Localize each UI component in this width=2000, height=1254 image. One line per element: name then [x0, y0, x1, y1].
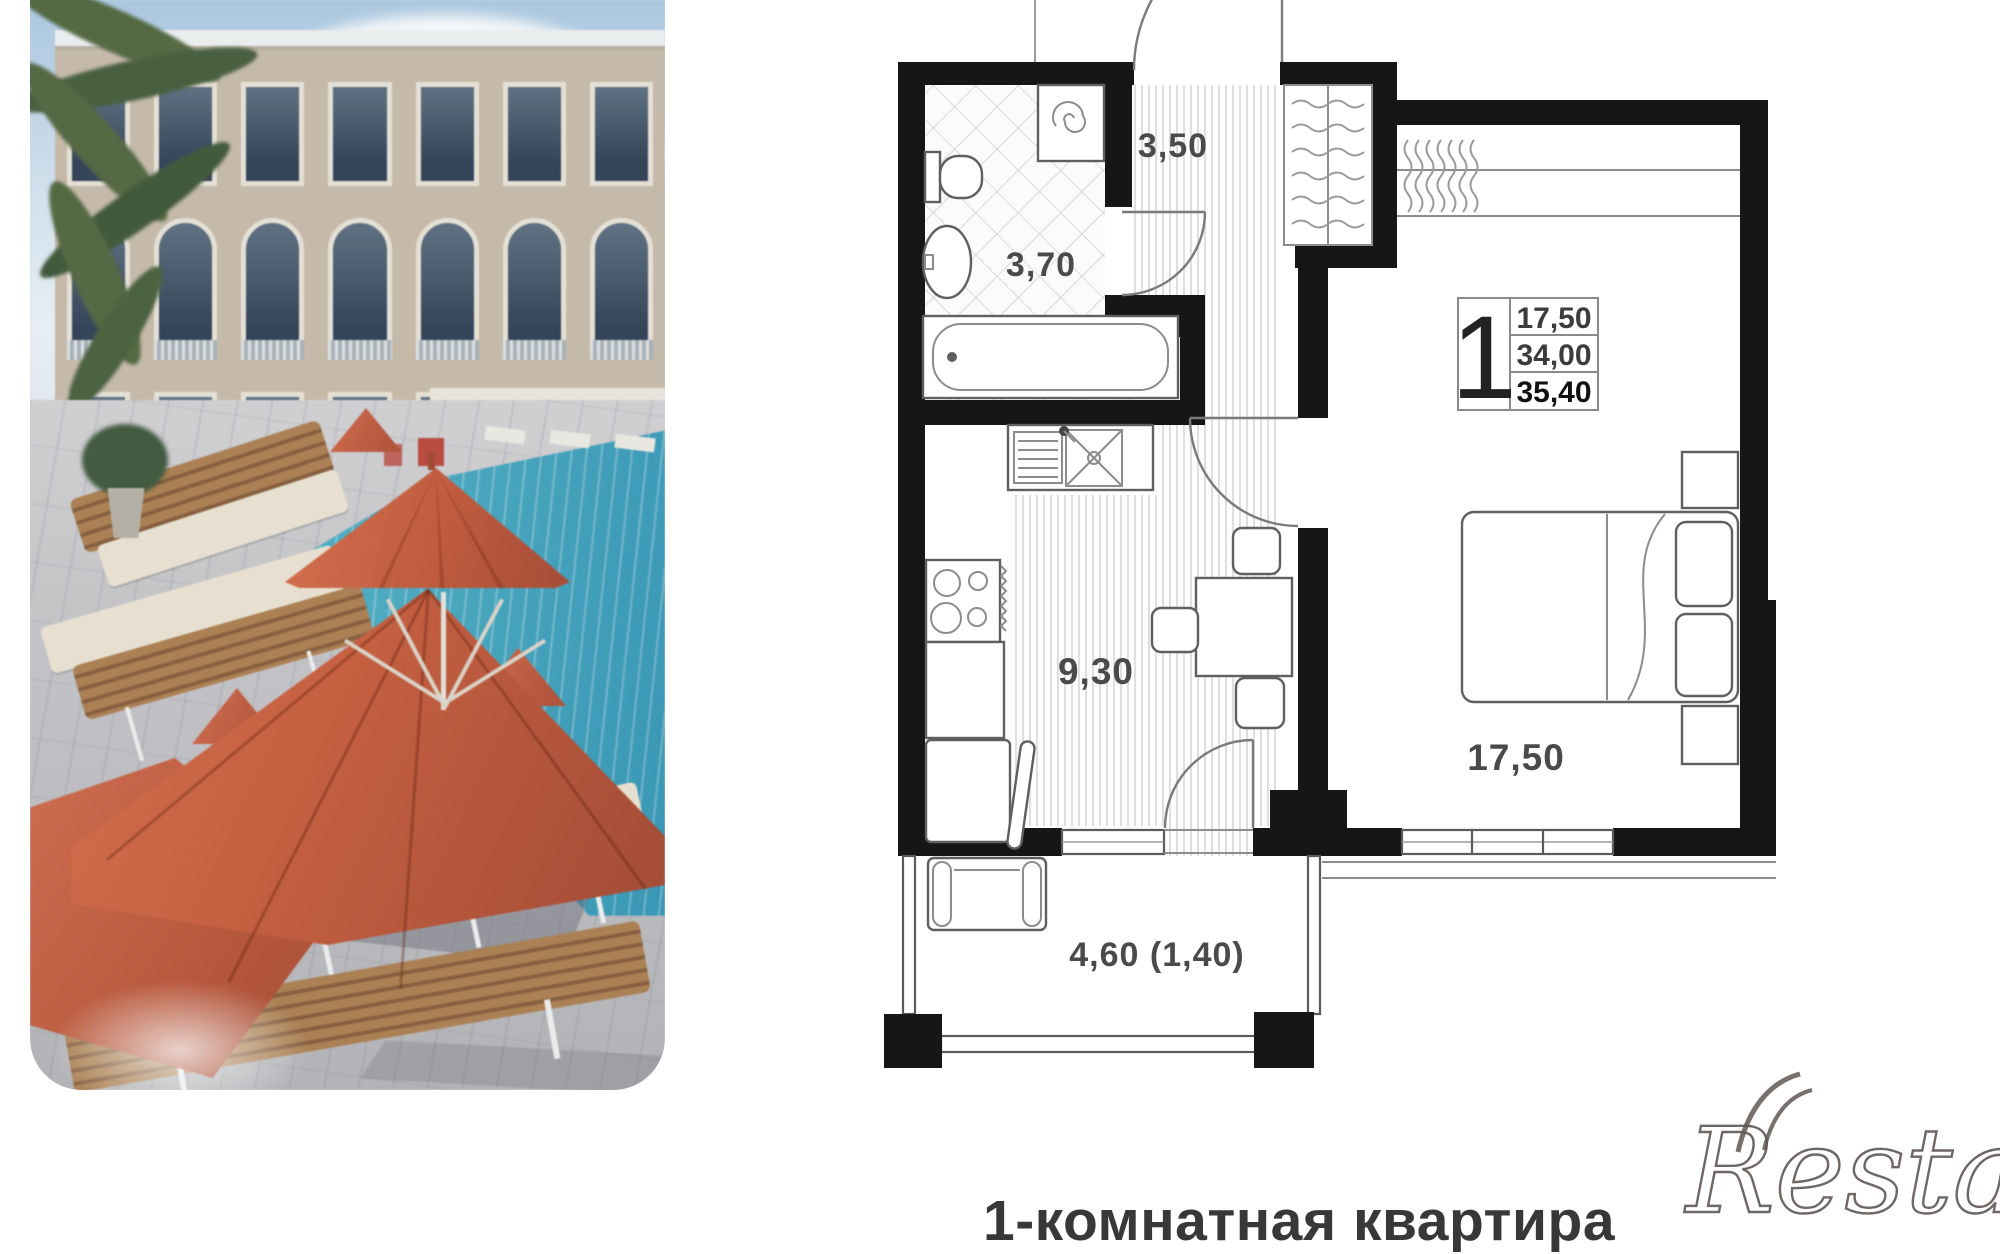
- fridge: [926, 740, 1010, 842]
- hall-area-label: 3,50: [1138, 127, 1208, 165]
- total-area: 35,40: [1516, 376, 1591, 409]
- nightstand: [1682, 706, 1738, 764]
- living-area: 17,50: [1516, 302, 1591, 335]
- wardrobe-rail: [1397, 140, 1740, 216]
- balcony-area-label: 4,60 (1,40): [1069, 936, 1244, 974]
- room-area-label: 17,50: [1467, 737, 1565, 778]
- nightstand: [1682, 452, 1738, 508]
- entry-door: [1134, 0, 1282, 70]
- watermark: Restate: [1600, 1040, 2000, 1223]
- chair: [1152, 608, 1198, 652]
- chair: [1236, 678, 1284, 728]
- bathroom-area-label: 3,70: [1006, 246, 1076, 284]
- chair: [1233, 528, 1280, 574]
- bathtub: [923, 316, 1178, 398]
- listing-photo: [30, 0, 665, 1090]
- facade-lines: [1322, 862, 1776, 878]
- toilet: [925, 152, 982, 202]
- watermark-text: Restate: [1684, 1102, 2000, 1223]
- umbrella-pole: [441, 592, 446, 710]
- apartment-info-box: 1 17,50 34,00 35,40: [1451, 292, 1598, 424]
- potted-plant: [82, 424, 168, 496]
- rooms-count: 1: [1451, 292, 1517, 424]
- stove: [926, 560, 1006, 642]
- dining-table: [1196, 578, 1292, 676]
- bed: [1462, 512, 1738, 702]
- pillow: [1676, 522, 1732, 606]
- photo-layers: [30, 0, 665, 1090]
- umbrella-finial: [428, 452, 435, 470]
- kitchen-window: [1062, 830, 1164, 854]
- balcony-armchair: [928, 858, 1046, 930]
- kitchen-sink: [1008, 425, 1153, 490]
- kitchen-counter: [926, 642, 1004, 738]
- washing-machine: [1038, 85, 1104, 161]
- building-window-row: [67, 82, 653, 186]
- pillow: [1676, 614, 1732, 696]
- wash-basin: [923, 226, 971, 298]
- listing-caption: 1-комнатная квартира: [983, 1188, 1615, 1254]
- wardrobe: [1284, 85, 1372, 245]
- living-room-window: [1402, 830, 1613, 854]
- kitchen-area-label: 9,30: [1058, 651, 1134, 692]
- floor-plan: 1 17,50 34,00 35,40 3,50 3,70 9,30 17,50…: [690, 0, 2000, 1100]
- area-without-balcony: 34,00: [1516, 339, 1591, 372]
